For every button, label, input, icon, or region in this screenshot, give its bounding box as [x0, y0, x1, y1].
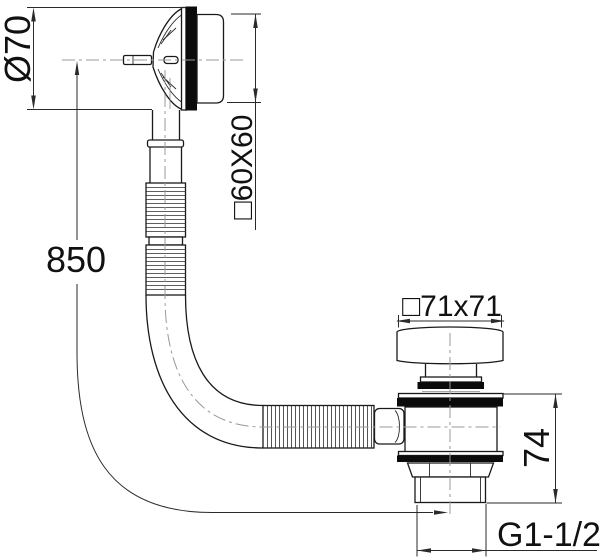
hose-corrugation-vertical-2: [146, 245, 186, 295]
body-bottom-flange: [399, 452, 504, 456]
dimension-overflow-faceplate: □60X60: [226, 14, 261, 230]
overflow-faceplate-label: □60X60: [226, 115, 259, 220]
drain-flange-label: □71x71: [402, 290, 502, 323]
dimension-outlet-thread: G1-1/2: [417, 504, 600, 557]
body-top-flange: [399, 394, 504, 399]
hose-bend-outer: [146, 295, 263, 448]
hose-length-label: 850: [46, 239, 106, 280]
overflow-head: [124, 7, 224, 111]
drawing-svg: Ø70 □60X60 850 □71x71 74: [0, 0, 600, 560]
plug-gasket: [418, 382, 485, 389]
hose-corrugation-vertical-1: [146, 183, 186, 237]
plug-flange: [421, 377, 482, 382]
dimension-drain-body-height: 74: [487, 394, 563, 503]
overflow-gasket: [186, 7, 198, 111]
drain-body: [405, 407, 497, 452]
outlet-thread-label: G1-1/2: [497, 516, 600, 554]
dimension-drain-flange: □71x71: [396, 290, 505, 328]
technical-drawing: Ø70 □60X60 850 □71x71 74: [0, 0, 600, 560]
overflow-flange-plate: [182, 8, 187, 111]
hose-bend-inner: [186, 295, 264, 406]
hose-ring: [149, 237, 183, 245]
overflow-diameter-label: Ø70: [0, 15, 38, 83]
hose-centerline: [165, 70, 500, 427]
drain-body-height-label: 74: [516, 428, 557, 468]
overflow-cap: [197, 15, 224, 104]
flexible-hose: [146, 110, 404, 448]
